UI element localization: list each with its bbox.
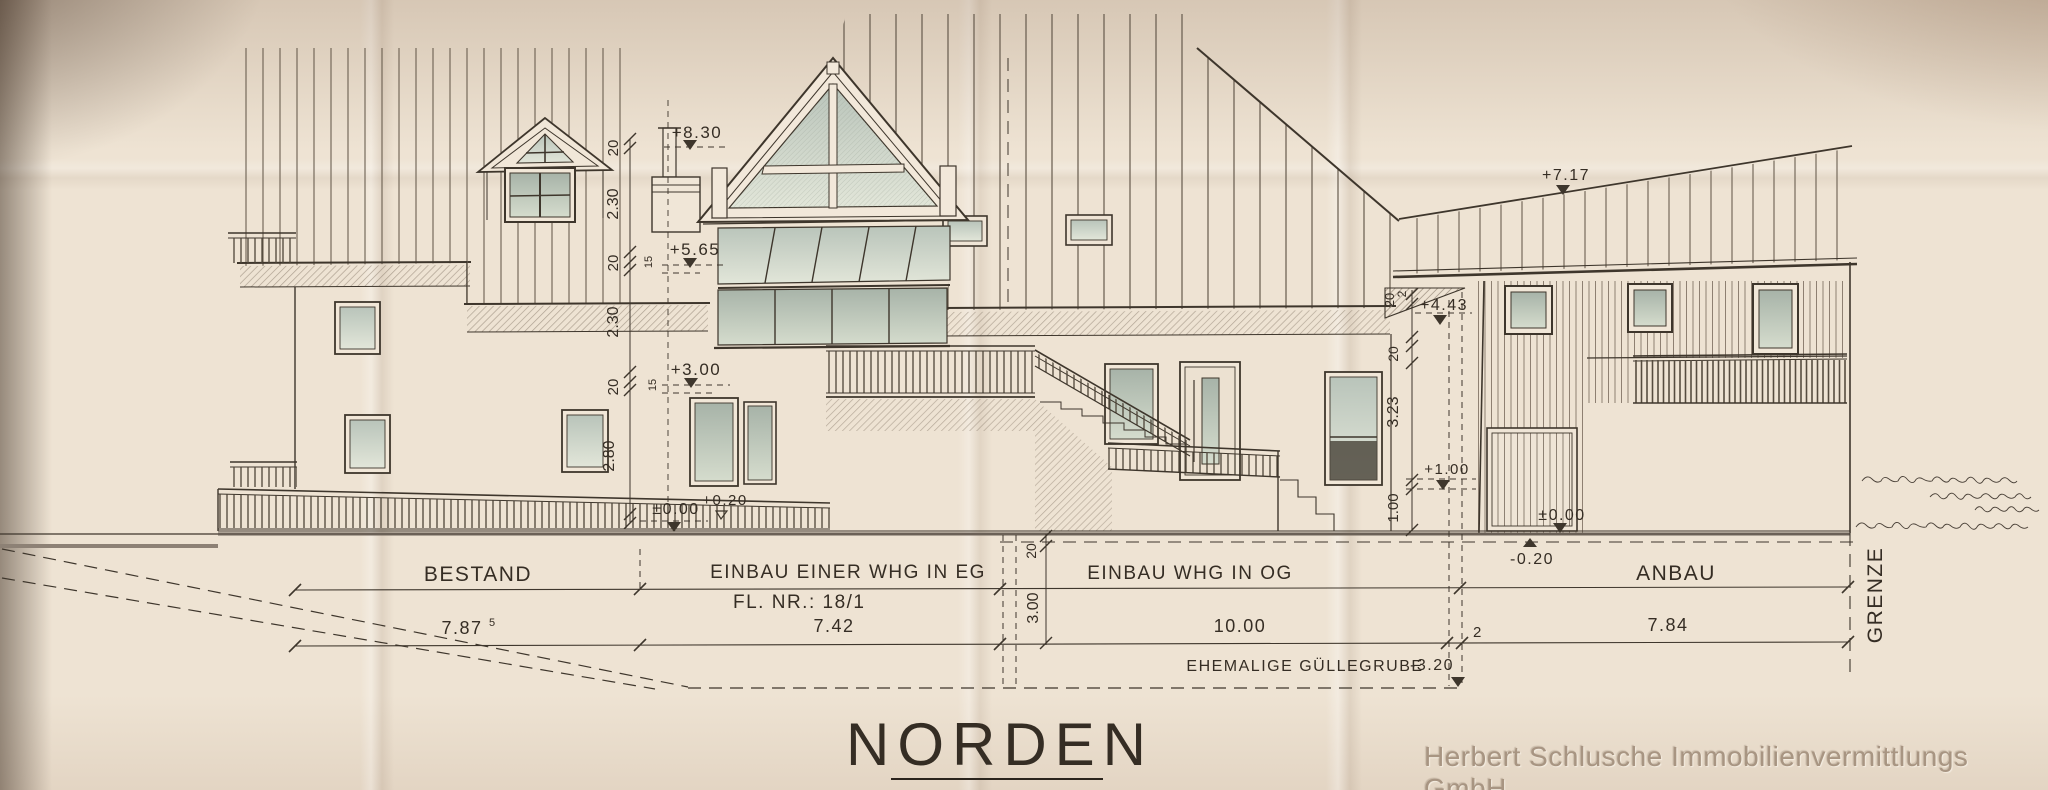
- dim-v: 2.80: [601, 440, 618, 471]
- window: [345, 415, 390, 473]
- svg-text:+4.43: +4.43: [1420, 297, 1468, 314]
- svg-text:+1.00: +1.00: [1424, 461, 1469, 478]
- dim-v-small: 15: [647, 379, 659, 391]
- level-marker-triangle: [684, 378, 698, 388]
- label-guellegrube: EHEMALIGE GÜLLEGRUBE: [1186, 657, 1423, 675]
- title-block: NORDEN: [846, 711, 1154, 779]
- ground-line: [0, 531, 1855, 546]
- page-title: NORDEN: [846, 711, 1154, 778]
- label-flnr: FL. NR.: 18/1: [733, 592, 866, 613]
- level-marker-triangle: [683, 258, 697, 268]
- dim-v-small: 2: [1395, 290, 1409, 297]
- elevation-drawing: 20 2.30 20 15 2.30 20 15 2.80 20 3.00 20…: [0, 0, 2048, 790]
- dim-v: 20: [605, 255, 622, 272]
- dim-v: 1.00: [1385, 493, 1402, 522]
- dim-v-small: 15: [643, 256, 655, 268]
- dim-v: 3.00: [1025, 592, 1042, 623]
- bestand-roof: [237, 48, 471, 304]
- dim-v: 20: [605, 379, 622, 396]
- landing-railing: [1108, 443, 1280, 531]
- level-marker-triangle: [1433, 315, 1447, 325]
- svg-text:+0.20: +0.20: [702, 492, 747, 509]
- dim-og: 10.00: [1214, 616, 1267, 636]
- window: [1628, 284, 1672, 332]
- window-louvered: [1325, 372, 1382, 485]
- window: [1753, 284, 1798, 354]
- svg-text:+8.30: +8.30: [672, 123, 723, 142]
- dim-bestand-sup: 5: [489, 617, 495, 629]
- small-railing-lower: [230, 462, 297, 487]
- dim-eg: 7.42: [813, 616, 854, 636]
- label-einbau-og: EINBAU WHG IN OG: [1087, 563, 1293, 584]
- svg-text:-0.20: -0.20: [1510, 551, 1554, 568]
- labels: BESTAND EINBAU EINER WHG IN EG FL. NR.: …: [424, 547, 1887, 675]
- sunroom-glazing: [703, 220, 966, 348]
- door: [690, 398, 738, 486]
- dim-v: 2.30: [605, 188, 622, 219]
- photographed-blueprint: 20 2.30 20 15 2.30 20 15 2.80 20 3.00 20…: [0, 0, 2048, 790]
- level-anbau-eave: +4.43: [1415, 297, 1472, 325]
- terrain-scribbles: [1856, 476, 2039, 529]
- dim-v: 2.30: [605, 306, 622, 337]
- anbau-railing: [1633, 354, 1847, 403]
- watermark: Herbert Schlusche Immobilienvermittlungs…: [1424, 741, 2044, 790]
- door: [744, 402, 776, 484]
- dim-gap: 2: [1473, 624, 1483, 641]
- label-anbau: ANBAU: [1636, 562, 1716, 585]
- dim-v: 20: [605, 140, 622, 157]
- level-marker-triangle: [1436, 480, 1450, 490]
- dim-v: 20: [1023, 543, 1039, 559]
- level-upper-floor: +3.00: [662, 360, 730, 393]
- skylight-right: [1066, 215, 1112, 245]
- label-grenze: GRENZE: [1864, 547, 1887, 644]
- level-marker-triangle: [1451, 677, 1465, 687]
- dim-v: 20: [1385, 346, 1401, 362]
- dim-anbau: 7.84: [1647, 615, 1688, 635]
- level-mid: +5.65: [662, 240, 724, 273]
- dim-v: 3.23: [1385, 396, 1402, 427]
- balcony-railing: [826, 346, 1035, 397]
- level-ridge-anbau: +7.17: [1542, 167, 1590, 195]
- dim-bestand: 7.87: [441, 618, 482, 638]
- svg-text:+5.65: +5.65: [670, 240, 721, 259]
- svg-text:±0.00: ±0.00: [652, 501, 699, 518]
- label-einbau-eg: EINBAU EINER WHG IN EG: [710, 562, 986, 583]
- anbau-wall: [1478, 262, 1850, 533]
- og-wall: [1105, 334, 1391, 531]
- svg-text:+3.00: +3.00: [671, 360, 722, 379]
- label-bestand: BESTAND: [424, 563, 532, 586]
- svg-text:+7.17: +7.17: [1542, 167, 1590, 184]
- dim-chain-mid: 20 3.00: [1023, 530, 1052, 649]
- level-marker-triangle: [683, 140, 697, 150]
- window: [335, 302, 380, 354]
- svg-text:±0.00: ±0.00: [1538, 507, 1585, 524]
- window: [1505, 286, 1552, 334]
